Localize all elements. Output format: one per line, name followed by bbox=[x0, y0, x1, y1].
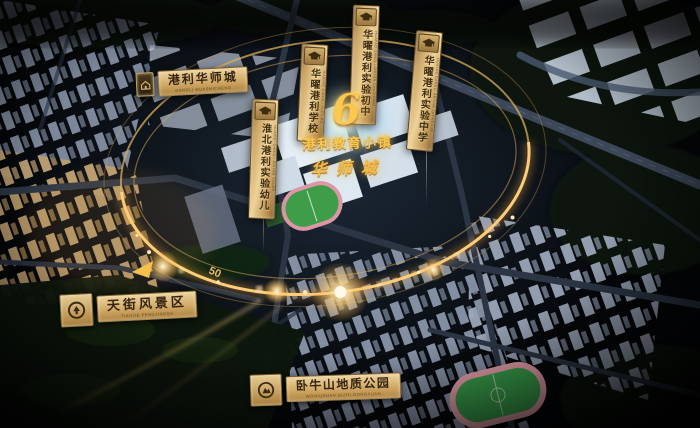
graduation-cap-icon bbox=[417, 33, 439, 53]
education-town-logo: 6 港利教育小镇 华师城 bbox=[289, 88, 404, 181]
poi-badge-plate: 卧牛山地质公园 WONIUSHAN DIZHI GONGYUAN bbox=[286, 372, 401, 402]
graduation-cap-icon bbox=[303, 47, 325, 66]
building-icon bbox=[135, 72, 154, 97]
project-badge-plate: 港利华师城 GANGLI HUASHICHENG bbox=[157, 66, 248, 97]
mountain-icon bbox=[249, 374, 282, 407]
graduation-cap-icon bbox=[254, 102, 276, 121]
poi-badge-geopark: 卧牛山地质公园 WONIUSHAN DIZHI GONGYUAN bbox=[249, 369, 401, 406]
school-tag-youeryuan: 淮北港利实验幼儿 HUAIBEI GANGLI SHIYAN YOUER bbox=[248, 99, 279, 220]
aerial-masterplan-render: 50 华曜港利实验初中 HUAYAO GANGLI SHIYAN CHUZHON… bbox=[0, 0, 700, 428]
tag-beam bbox=[426, 148, 427, 206]
top-shade bbox=[0, 0, 700, 44]
logo-numeral-6: 6 bbox=[289, 88, 402, 132]
poi-badge-title: 天街风景区 bbox=[107, 295, 188, 313]
logo-title: 港利教育小镇 bbox=[291, 130, 404, 154]
school-tag-pinyin: HUAIBEI GANGLI SHIYAN YOUER bbox=[271, 125, 277, 191]
poi-badge-plate: 天街风景区 TIANJIE FENGJINGQU bbox=[96, 290, 197, 322]
scenic-area-icon bbox=[59, 293, 94, 328]
logo-script-huashicheng: 华师城 bbox=[292, 153, 405, 181]
graduation-cap-icon bbox=[355, 8, 377, 27]
school-tag-label: 淮北港利实验幼儿 bbox=[257, 123, 270, 211]
